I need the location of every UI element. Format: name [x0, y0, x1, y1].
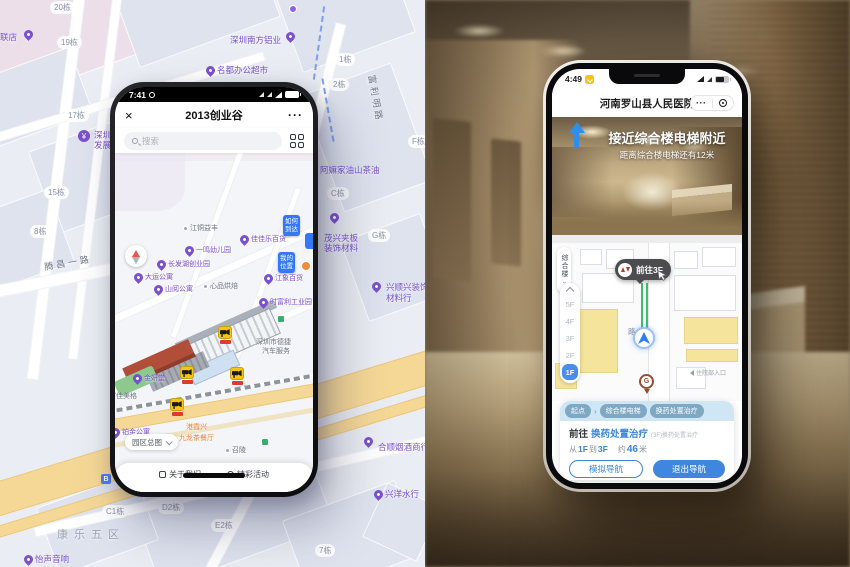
- poi-pin-icon: [289, 5, 297, 13]
- elevator-icon: [618, 263, 632, 277]
- chevron-up-icon[interactable]: [566, 287, 574, 295]
- building-number-label: 15栋: [44, 186, 69, 199]
- building-number-label: E2栋: [211, 519, 237, 532]
- search-input[interactable]: 搜索: [124, 132, 282, 150]
- poi-pin-icon: [183, 244, 196, 257]
- route-card: 起点›综合楼电梯换药处置治疗 前往 换药处置治疗 (3F)换药处置治疗 从1F到…: [560, 401, 734, 480]
- page-title: 2013创业谷: [115, 107, 313, 123]
- map-poi: [289, 5, 297, 13]
- cctv-marker-icon[interactable]: [170, 398, 184, 416]
- map-poi: 装饰材料: [324, 242, 358, 254]
- map-poi[interactable]: 召陵: [225, 445, 246, 455]
- floor-option-4F[interactable]: 4F: [562, 313, 578, 329]
- mini-program-navbar: 河南罗山县人民医院 ···: [552, 89, 742, 117]
- map-poi-label: 发展: [94, 139, 111, 151]
- map-poi[interactable]: 时富利工业园: [259, 297, 312, 307]
- map-poi-label: 怡声音响: [35, 553, 69, 565]
- map-poi: 兴洋水行: [374, 488, 419, 500]
- poi-pin-icon: [155, 258, 168, 271]
- hand-cursor-icon: [655, 268, 670, 288]
- map-poi[interactable]: 长发湖创业园: [157, 259, 210, 269]
- battery-icon: [285, 91, 299, 98]
- map-action-button[interactable]: 我的位置: [278, 252, 295, 273]
- alarm-icon: [149, 92, 155, 98]
- chevron-down-icon: [166, 438, 173, 445]
- mini-program-navbar: × 2013创业谷 ···: [115, 102, 313, 128]
- route-step-chip[interactable]: 起点: [565, 404, 591, 418]
- current-position-icon: [633, 327, 655, 349]
- map-poi-label: 长发湖创业园: [168, 259, 210, 269]
- map-poi-label: 一鸣幼儿园: [196, 245, 231, 255]
- map-poi-label: 九龙茶餐厅: [179, 433, 214, 443]
- map-poi-label: 时富利工业园: [270, 297, 312, 307]
- map-poi: B: [101, 474, 111, 484]
- map-poi-label: 材料行: [386, 292, 412, 304]
- poi-pin-icon: [372, 488, 385, 501]
- exit-circle-icon[interactable]: [713, 99, 734, 107]
- poi-pin-icon: [277, 315, 285, 323]
- search-icon: [132, 138, 138, 144]
- road-name-label: 康乐五区: [57, 526, 125, 542]
- wifi-icon: [707, 77, 712, 82]
- cctv-marker-icon[interactable]: [180, 366, 194, 384]
- map-poi: [364, 437, 373, 446]
- hallway-background: 4:49 河南罗山县人民医院 ···: [425, 0, 850, 567]
- building-number-label: D2栋: [158, 501, 184, 514]
- map-poi[interactable]: 山阅公寓: [154, 284, 193, 294]
- map-poi-label: 合顺烟酒商行: [378, 441, 425, 453]
- building-number-label: C栋: [327, 187, 349, 200]
- route-steps-bar: 起点›综合楼电梯换药处置治疗: [560, 401, 734, 421]
- map-poi: 材料行: [386, 292, 412, 304]
- left-status-bar: 7:41: [115, 87, 313, 102]
- building-number-label: 17栋: [64, 109, 89, 122]
- poi-pin-icon: [132, 271, 145, 284]
- map-poi-label: 富佳美格: [115, 391, 137, 401]
- map-poi: 发展: [94, 139, 111, 151]
- direction-arrow-icon: [574, 131, 579, 148]
- map-poi: 深圳南方铝业: [230, 34, 281, 46]
- sim1-signal-icon: [259, 92, 264, 97]
- search-placeholder: 搜索: [142, 135, 159, 147]
- map-poi[interactable]: 富佳美格: [115, 391, 137, 401]
- map-poi: [330, 213, 339, 222]
- destination-badge: G: [639, 374, 654, 389]
- notch: [609, 69, 685, 84]
- poi-pin-icon: [362, 435, 375, 448]
- poi-pin-icon: [225, 448, 230, 453]
- poi-pin-icon: [257, 296, 270, 309]
- poi-pin-icon: [203, 284, 208, 289]
- map-poi[interactable]: 江象百货: [264, 273, 303, 283]
- left-arrowhead-icon: [690, 370, 694, 376]
- map-poi-label: 江象百货: [275, 273, 303, 283]
- home-indicator: [183, 473, 245, 478]
- building-number-label: 20栋: [50, 1, 75, 14]
- map-poi: [372, 282, 381, 291]
- map-poi: 联店: [0, 31, 17, 43]
- floor-selector[interactable]: 5F4F3F2F1F: [560, 283, 580, 383]
- destination-note: (3F)换药处置治疗: [651, 430, 698, 439]
- right-phone-screen: 4:49 河南罗山县人民医院 ···: [552, 69, 742, 483]
- poi-pin-icon: [115, 426, 122, 439]
- poi-pin-icon: [262, 272, 275, 285]
- building-number-label: 8栋: [30, 225, 50, 238]
- bank-icon: ¥: [78, 130, 90, 142]
- destination-name: 换药处置治疗: [591, 426, 648, 440]
- map-poi-label: 汽车服务: [262, 346, 290, 356]
- map-poi[interactable]: [277, 315, 285, 323]
- map-poi-label: 大运公寓: [145, 272, 173, 282]
- poi-pin-icon: [370, 280, 383, 293]
- map-poi-label: 兴洋水行: [385, 488, 419, 500]
- map-poi[interactable]: 汽车服务: [262, 346, 290, 356]
- poi-pin-icon: [131, 372, 144, 385]
- floor-option-2F[interactable]: 2F: [562, 347, 578, 363]
- simulate-nav-button[interactable]: 模拟导航: [569, 460, 643, 478]
- building-number-label: C1栋: [102, 505, 128, 518]
- indoor-floorplan[interactable]: 综合楼› 5F4F3F2F1F 前往3F: [552, 243, 742, 401]
- map-poi-label: 名都办公超市: [217, 64, 268, 76]
- map-poi: 怡声音响: [24, 553, 69, 565]
- map-poi[interactable]: [261, 438, 269, 446]
- status-time: 4:49: [565, 74, 582, 84]
- guidance-title: 接近综合楼电梯附近: [596, 128, 738, 147]
- building-number-label: G栋: [368, 229, 390, 242]
- floor-option-1F[interactable]: 1F: [562, 364, 578, 380]
- map-poi[interactable]: 金妍堂: [133, 373, 165, 383]
- floor-option-5F[interactable]: 5F: [562, 296, 578, 312]
- map-poi: [24, 30, 33, 39]
- poi-pin-icon: [284, 30, 297, 43]
- map-poi-label: 装饰材料: [324, 242, 358, 254]
- map-poi-label: 联店: [0, 31, 17, 43]
- distance-summary: 从1F到3F约46米: [569, 444, 725, 455]
- guidance-subtitle: 距离综合楼电梯还有12米: [596, 149, 738, 161]
- left-phone-screen: 7:41 × 2013创业谷 ··· 搜索: [115, 87, 313, 492]
- poi-pin-icon: [183, 226, 188, 231]
- map-poi: ¥: [78, 130, 90, 142]
- grid-menu-icon[interactable]: [290, 134, 304, 148]
- building-number-label: 7栋: [315, 544, 335, 557]
- signal-icon: [697, 76, 704, 82]
- right-phone: 4:49 河南罗山县人民医院 ···: [543, 60, 751, 492]
- map-poi: 合顺烟酒商行: [378, 441, 425, 453]
- map-poi-label: 深圳南方铝业: [230, 34, 281, 46]
- map-poi-label: 山阅公寓: [165, 284, 193, 294]
- overview-dropdown[interactable]: 园区总图: [125, 434, 178, 450]
- map-poi[interactable]: 佳佳乐百货: [240, 234, 286, 244]
- edge-button-partial[interactable]: [305, 233, 313, 249]
- map-poi: [286, 32, 295, 41]
- entrance-label: 住院部入口: [690, 368, 726, 377]
- location-badge-icon: [585, 75, 594, 84]
- poi-pin-icon: [152, 283, 165, 296]
- screenshot-root: 20栋19栋17栋1栋2栋15栋8栋C1栋D2栋E2栋7栋C栋G栋F栋联店深圳南…: [0, 0, 850, 567]
- overview-dropdown-label: 园区总图: [132, 437, 162, 448]
- go-label: 前往: [569, 426, 588, 440]
- map-poi-label: 阿嫲家油山茶油: [320, 164, 380, 176]
- chip-separator-icon: ›: [594, 407, 597, 416]
- section-divider: [552, 235, 742, 243]
- building-tab-label: 综合楼: [559, 254, 569, 278]
- map-poi[interactable]: 心品烘焙: [203, 281, 238, 291]
- left-phone: 7:41 × 2013创业谷 ··· 搜索: [110, 82, 318, 497]
- map-poi[interactable]: 一鸣幼儿园: [185, 245, 231, 255]
- map-poi-label: 召陵: [232, 445, 246, 455]
- compass-icon[interactable]: [125, 245, 147, 267]
- cctv-marker-icon[interactable]: [218, 326, 232, 344]
- map-poi-label: 金妍堂: [144, 373, 165, 383]
- building-number-label: 2栋: [329, 78, 349, 91]
- battery-icon: [715, 76, 729, 83]
- map-action-button[interactable]: 如何到达: [283, 215, 300, 236]
- corridor-camera-view: 接近综合楼电梯附近 距离综合楼电梯还有12米: [552, 117, 742, 235]
- status-time: 7:41: [129, 90, 146, 100]
- map-poi-label: 港霞兴: [186, 422, 207, 432]
- floor-option-3F[interactable]: 3F: [562, 330, 578, 346]
- building-number-label: 19栋: [57, 36, 82, 49]
- more-icon[interactable]: ···: [691, 96, 712, 110]
- right-phone-bezel: 4:49 河南罗山县人民医院 ···: [546, 63, 748, 489]
- map-poi[interactable]: 港霞兴: [186, 422, 207, 432]
- map-poi-label: 心品烘焙: [210, 281, 238, 291]
- map-poi: 名都办公超市: [206, 64, 268, 76]
- search-row: 搜索: [115, 128, 313, 153]
- route-step-chip[interactable]: 综合楼电梯: [600, 404, 647, 418]
- wifi-icon: [275, 92, 282, 98]
- building-number-label: F栋: [408, 135, 425, 148]
- destination-marker[interactable]: G: [639, 374, 654, 394]
- exit-nav-button[interactable]: 退出导航: [653, 460, 725, 478]
- about-icon: [159, 471, 166, 478]
- poi-pin-icon: [238, 233, 251, 246]
- cctv-marker-icon[interactable]: [230, 367, 244, 385]
- route-path: [641, 283, 648, 329]
- sim2-signal-icon: [267, 92, 272, 97]
- poi-pin-icon: [261, 438, 269, 446]
- edge-poi-partial: [301, 261, 311, 271]
- more-icon[interactable]: ···: [288, 108, 303, 122]
- building-number-label: 1栋: [335, 53, 355, 66]
- wechat-capsule[interactable]: ···: [690, 95, 734, 111]
- map-poi[interactable]: 大运公寓: [134, 272, 173, 282]
- road-shield-icon: B: [101, 474, 111, 484]
- poi-pin-icon: [204, 64, 217, 77]
- map-poi-label: 江铜益丰: [190, 223, 218, 233]
- map-poi[interactable]: 江铜益丰: [183, 223, 218, 233]
- map-poi[interactable]: 九龙茶餐厅: [179, 433, 214, 443]
- map-poi-label: 佳佳乐百货: [251, 234, 286, 244]
- poi-pin-icon: [22, 553, 35, 566]
- poi-pin-icon: [22, 28, 35, 41]
- route-step-chip[interactable]: 换药处置治疗: [650, 404, 704, 418]
- poi-pin-icon: [328, 211, 341, 224]
- bottom-bar: 关于我们 精彩活动: [115, 463, 313, 492]
- map-poi: 阿嫲家油山茶油: [320, 164, 380, 176]
